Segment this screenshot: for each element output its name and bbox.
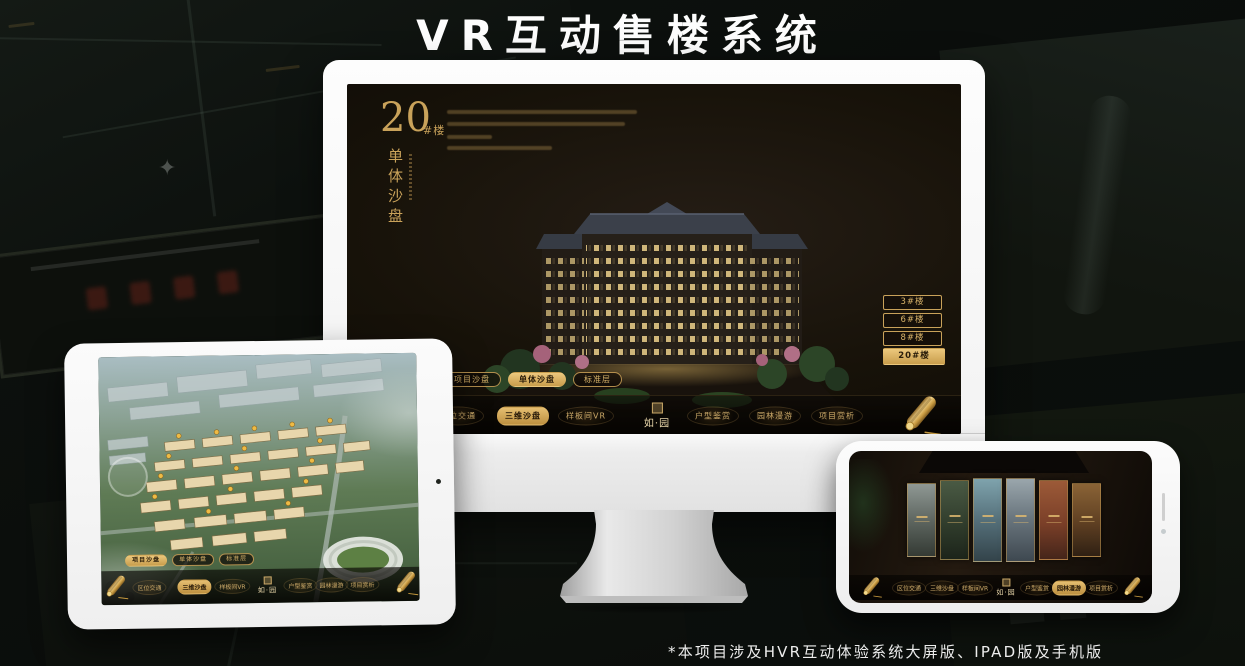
phone-screen: 区位交通 三维沙盘 样板间VR 如·园 户型鉴赏 园林漫游 项目赏析 xyxy=(849,451,1152,603)
description-line xyxy=(447,110,637,114)
tab-single-sandbox[interactable]: 单体沙盘 xyxy=(508,372,566,387)
foliage-silhouette xyxy=(849,459,905,569)
monitor-stand xyxy=(549,510,759,606)
brand-seal-icon xyxy=(652,402,663,413)
nav-item-location[interactable]: 区位交通 xyxy=(892,580,926,595)
gate-roof-silhouette xyxy=(919,451,1089,473)
nav-item-3d-sandbox[interactable]: 三维沙盘 xyxy=(177,579,211,594)
nav-item-showroom-vr[interactable]: 样板间VR xyxy=(214,579,250,595)
scroll-menu-icon[interactable] xyxy=(897,392,943,434)
scroll-menu-icon[interactable] xyxy=(1120,575,1144,599)
scroll-menu-icon[interactable] xyxy=(859,575,883,599)
nav-item-project-gallery[interactable]: 项目赏析 xyxy=(345,577,379,592)
nav-item-location[interactable]: 区位交通 xyxy=(132,580,166,595)
tablet-device: 项目沙盘 单体沙盘 标准层 区位交通 三维沙盘 样板间VR 如·园 户型鉴赏 园… xyxy=(64,338,456,629)
brand-logo[interactable]: 如·园 xyxy=(258,576,277,595)
nav-item-garden-roam[interactable]: 园林漫游 xyxy=(1052,580,1086,595)
floor-button-8[interactable]: 8#楼 xyxy=(883,331,942,346)
tab-single-sandbox[interactable]: 单体沙盘 xyxy=(172,554,214,567)
gallery-panel[interactable] xyxy=(907,483,936,557)
background-aerial-right xyxy=(939,11,1245,369)
tablet-subtabs: 项目沙盘 单体沙盘 标准层 xyxy=(125,553,254,567)
nav-item-floorplans[interactable]: 户型鉴赏 xyxy=(283,578,317,593)
tablet-camera-icon xyxy=(436,479,441,484)
nav-item-garden-roam[interactable]: 园林漫游 xyxy=(314,577,348,592)
hero-building-unit: #楼 xyxy=(423,122,445,138)
tab-standard-floor[interactable]: 标准层 xyxy=(219,553,254,565)
phone-navbar: 区位交通 三维沙盘 样板间VR 如·园 户型鉴赏 园林漫游 项目赏析 xyxy=(849,575,1152,600)
description-line xyxy=(447,146,552,150)
scene-gallery xyxy=(907,477,1101,563)
floor-button-6[interactable]: 6#楼 xyxy=(883,313,942,328)
floor-button-3[interactable]: 3#楼 xyxy=(883,295,942,310)
hero-subtitle-en-decor xyxy=(409,154,412,200)
hero-subtitle-vertical: 单体沙盘 xyxy=(385,148,406,228)
tab-project-sandbox[interactable]: 项目沙盘 xyxy=(125,554,167,567)
nav-item-project-gallery[interactable]: 项目赏析 xyxy=(1084,580,1118,595)
brand-seal-icon xyxy=(263,576,271,584)
footnote: *本项目涉及HVR互动体验系统大屏版、IPAD版及手机版 xyxy=(668,641,1103,662)
gallery-panel[interactable] xyxy=(1072,483,1101,557)
stage: ✦ VR互动售楼系统 20 #楼 xyxy=(0,0,1245,666)
brand-logo[interactable]: 如·园 xyxy=(644,402,670,429)
compass-star-decor: ✦ xyxy=(158,156,176,181)
nav-item-project-gallery[interactable]: 项目赏析 xyxy=(811,406,863,425)
gallery-panel[interactable] xyxy=(1039,480,1068,560)
building-render xyxy=(472,164,862,429)
phone-device: 区位交通 三维沙盘 样板间VR 如·园 户型鉴赏 园林漫游 项目赏析 xyxy=(836,441,1180,613)
phone-camera-icon xyxy=(1161,529,1166,534)
nav-item-3d-sandbox[interactable]: 三维沙盘 xyxy=(497,406,549,425)
tab-standard-floor[interactable]: 标准层 xyxy=(573,372,622,387)
nav-item-showroom-vr[interactable]: 样板间VR xyxy=(957,580,993,595)
gallery-panel[interactable] xyxy=(973,478,1002,562)
description-line xyxy=(447,135,492,139)
scroll-menu-icon[interactable] xyxy=(391,569,419,597)
nav-item-garden-roam[interactable]: 园林漫游 xyxy=(749,406,801,425)
gallery-panel[interactable] xyxy=(1006,478,1035,562)
brand-logo[interactable]: 如·园 xyxy=(996,578,1015,597)
gallery-panel[interactable] xyxy=(940,480,969,560)
tablet-navbar: 区位交通 三维沙盘 样板间VR 如·园 户型鉴赏 园林漫游 项目赏析 xyxy=(101,567,419,605)
nav-item-floorplans[interactable]: 户型鉴赏 xyxy=(1020,580,1054,595)
description-line xyxy=(447,122,625,126)
brand-seal-icon xyxy=(1002,578,1010,586)
phone-speaker-icon xyxy=(1162,493,1165,521)
monitor-subtabs: 项目沙盘 单体沙盘 标准层 xyxy=(443,372,622,387)
nav-item-3d-sandbox[interactable]: 三维沙盘 xyxy=(925,580,959,595)
nav-item-floorplans[interactable]: 户型鉴赏 xyxy=(687,406,739,425)
page-title: VR互动售楼系统 xyxy=(0,2,1245,63)
tablet-screen: 项目沙盘 单体沙盘 标准层 区位交通 三维沙盘 样板间VR 如·园 户型鉴赏 园… xyxy=(98,353,419,605)
scroll-menu-icon[interactable] xyxy=(101,573,129,601)
nav-item-showroom-vr[interactable]: 样板间VR xyxy=(558,406,614,425)
floor-button-20-active[interactable]: 20#楼 xyxy=(883,348,945,365)
stand-shadow xyxy=(514,600,794,616)
